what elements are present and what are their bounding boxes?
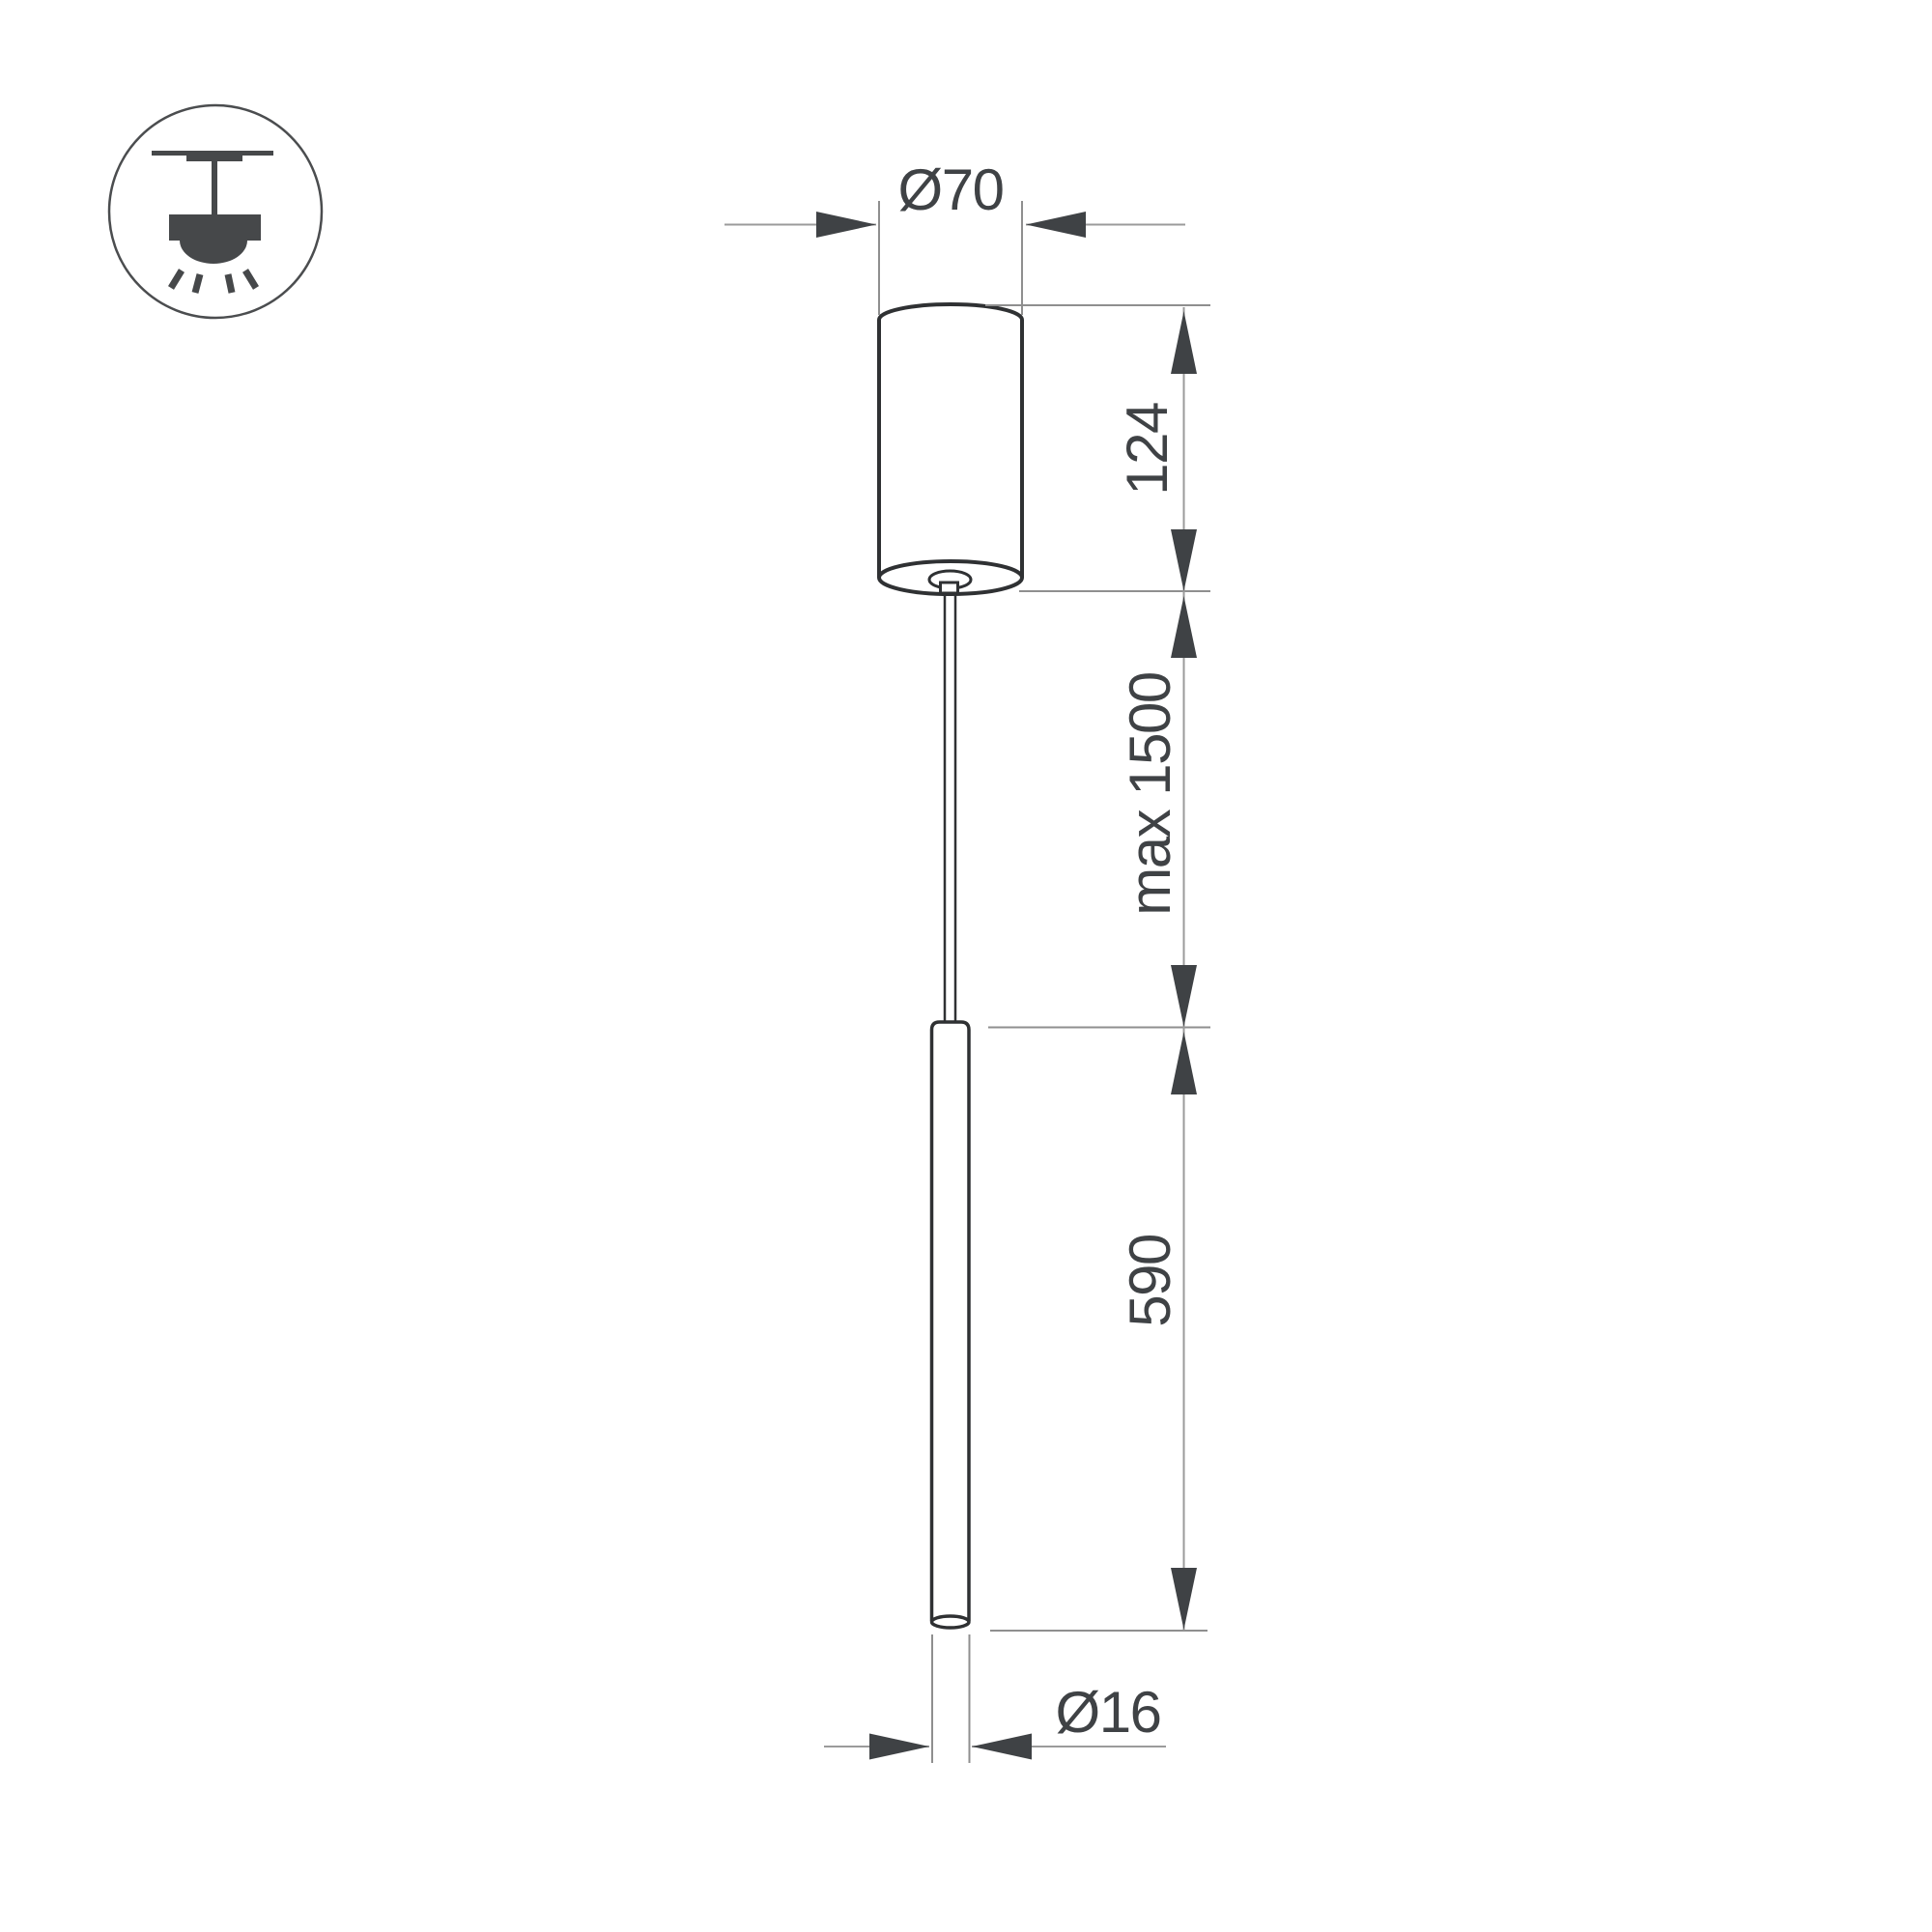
icon-lamp-body xyxy=(169,214,261,241)
canopy-top-arc xyxy=(879,304,1022,320)
arrow-down-icon xyxy=(1171,1568,1197,1630)
arrow-up-icon xyxy=(1171,1032,1197,1094)
pendant-tube-open-end xyxy=(932,1616,970,1628)
ceiling-mount-icon xyxy=(109,105,322,318)
arrow-left-icon xyxy=(1026,212,1086,238)
dimension-chain-vertical: 124 max 1500 590 xyxy=(985,305,1210,1631)
icon-mount-plate xyxy=(186,154,242,161)
dimension-label-suspension-length: max 1500 xyxy=(1118,672,1182,916)
cable-gland-neck xyxy=(941,582,958,593)
dimension-tube-length: 590 xyxy=(1118,1032,1197,1630)
dimension-canopy-diameter: Ø70 xyxy=(724,157,1185,315)
dimension-label-tube-diameter: Ø16 xyxy=(1056,1680,1161,1745)
dimension-tube-diameter: Ø16 xyxy=(824,1634,1166,1763)
dimension-label-canopy-height: 124 xyxy=(1115,403,1179,496)
drawing-canvas: Ø70 124 max 1500 590 xyxy=(0,0,1932,1932)
arrow-up-icon xyxy=(1171,311,1197,374)
arrow-up-icon xyxy=(1171,596,1197,658)
arrow-down-icon xyxy=(1171,965,1197,1027)
pendant-tube-body xyxy=(932,1022,970,1621)
arrow-right-icon xyxy=(816,212,876,238)
icon-lamp-dome xyxy=(180,241,247,264)
pendant-tube xyxy=(932,1022,970,1628)
icon-light-rays xyxy=(171,270,256,293)
dimension-label-canopy-diameter: Ø70 xyxy=(898,157,1004,222)
arrow-right-icon xyxy=(869,1734,929,1760)
canopy-cylinder xyxy=(879,304,1022,594)
icon-stem xyxy=(212,161,217,215)
technical-drawing: Ø70 124 max 1500 590 xyxy=(0,0,1932,1932)
dimension-label-tube-length: 590 xyxy=(1118,1235,1182,1327)
suspension-rod xyxy=(945,593,955,1023)
arrow-left-icon xyxy=(972,1734,1032,1760)
dimension-suspension-length: max 1500 xyxy=(1118,596,1197,1027)
arrow-down-icon xyxy=(1171,529,1197,591)
